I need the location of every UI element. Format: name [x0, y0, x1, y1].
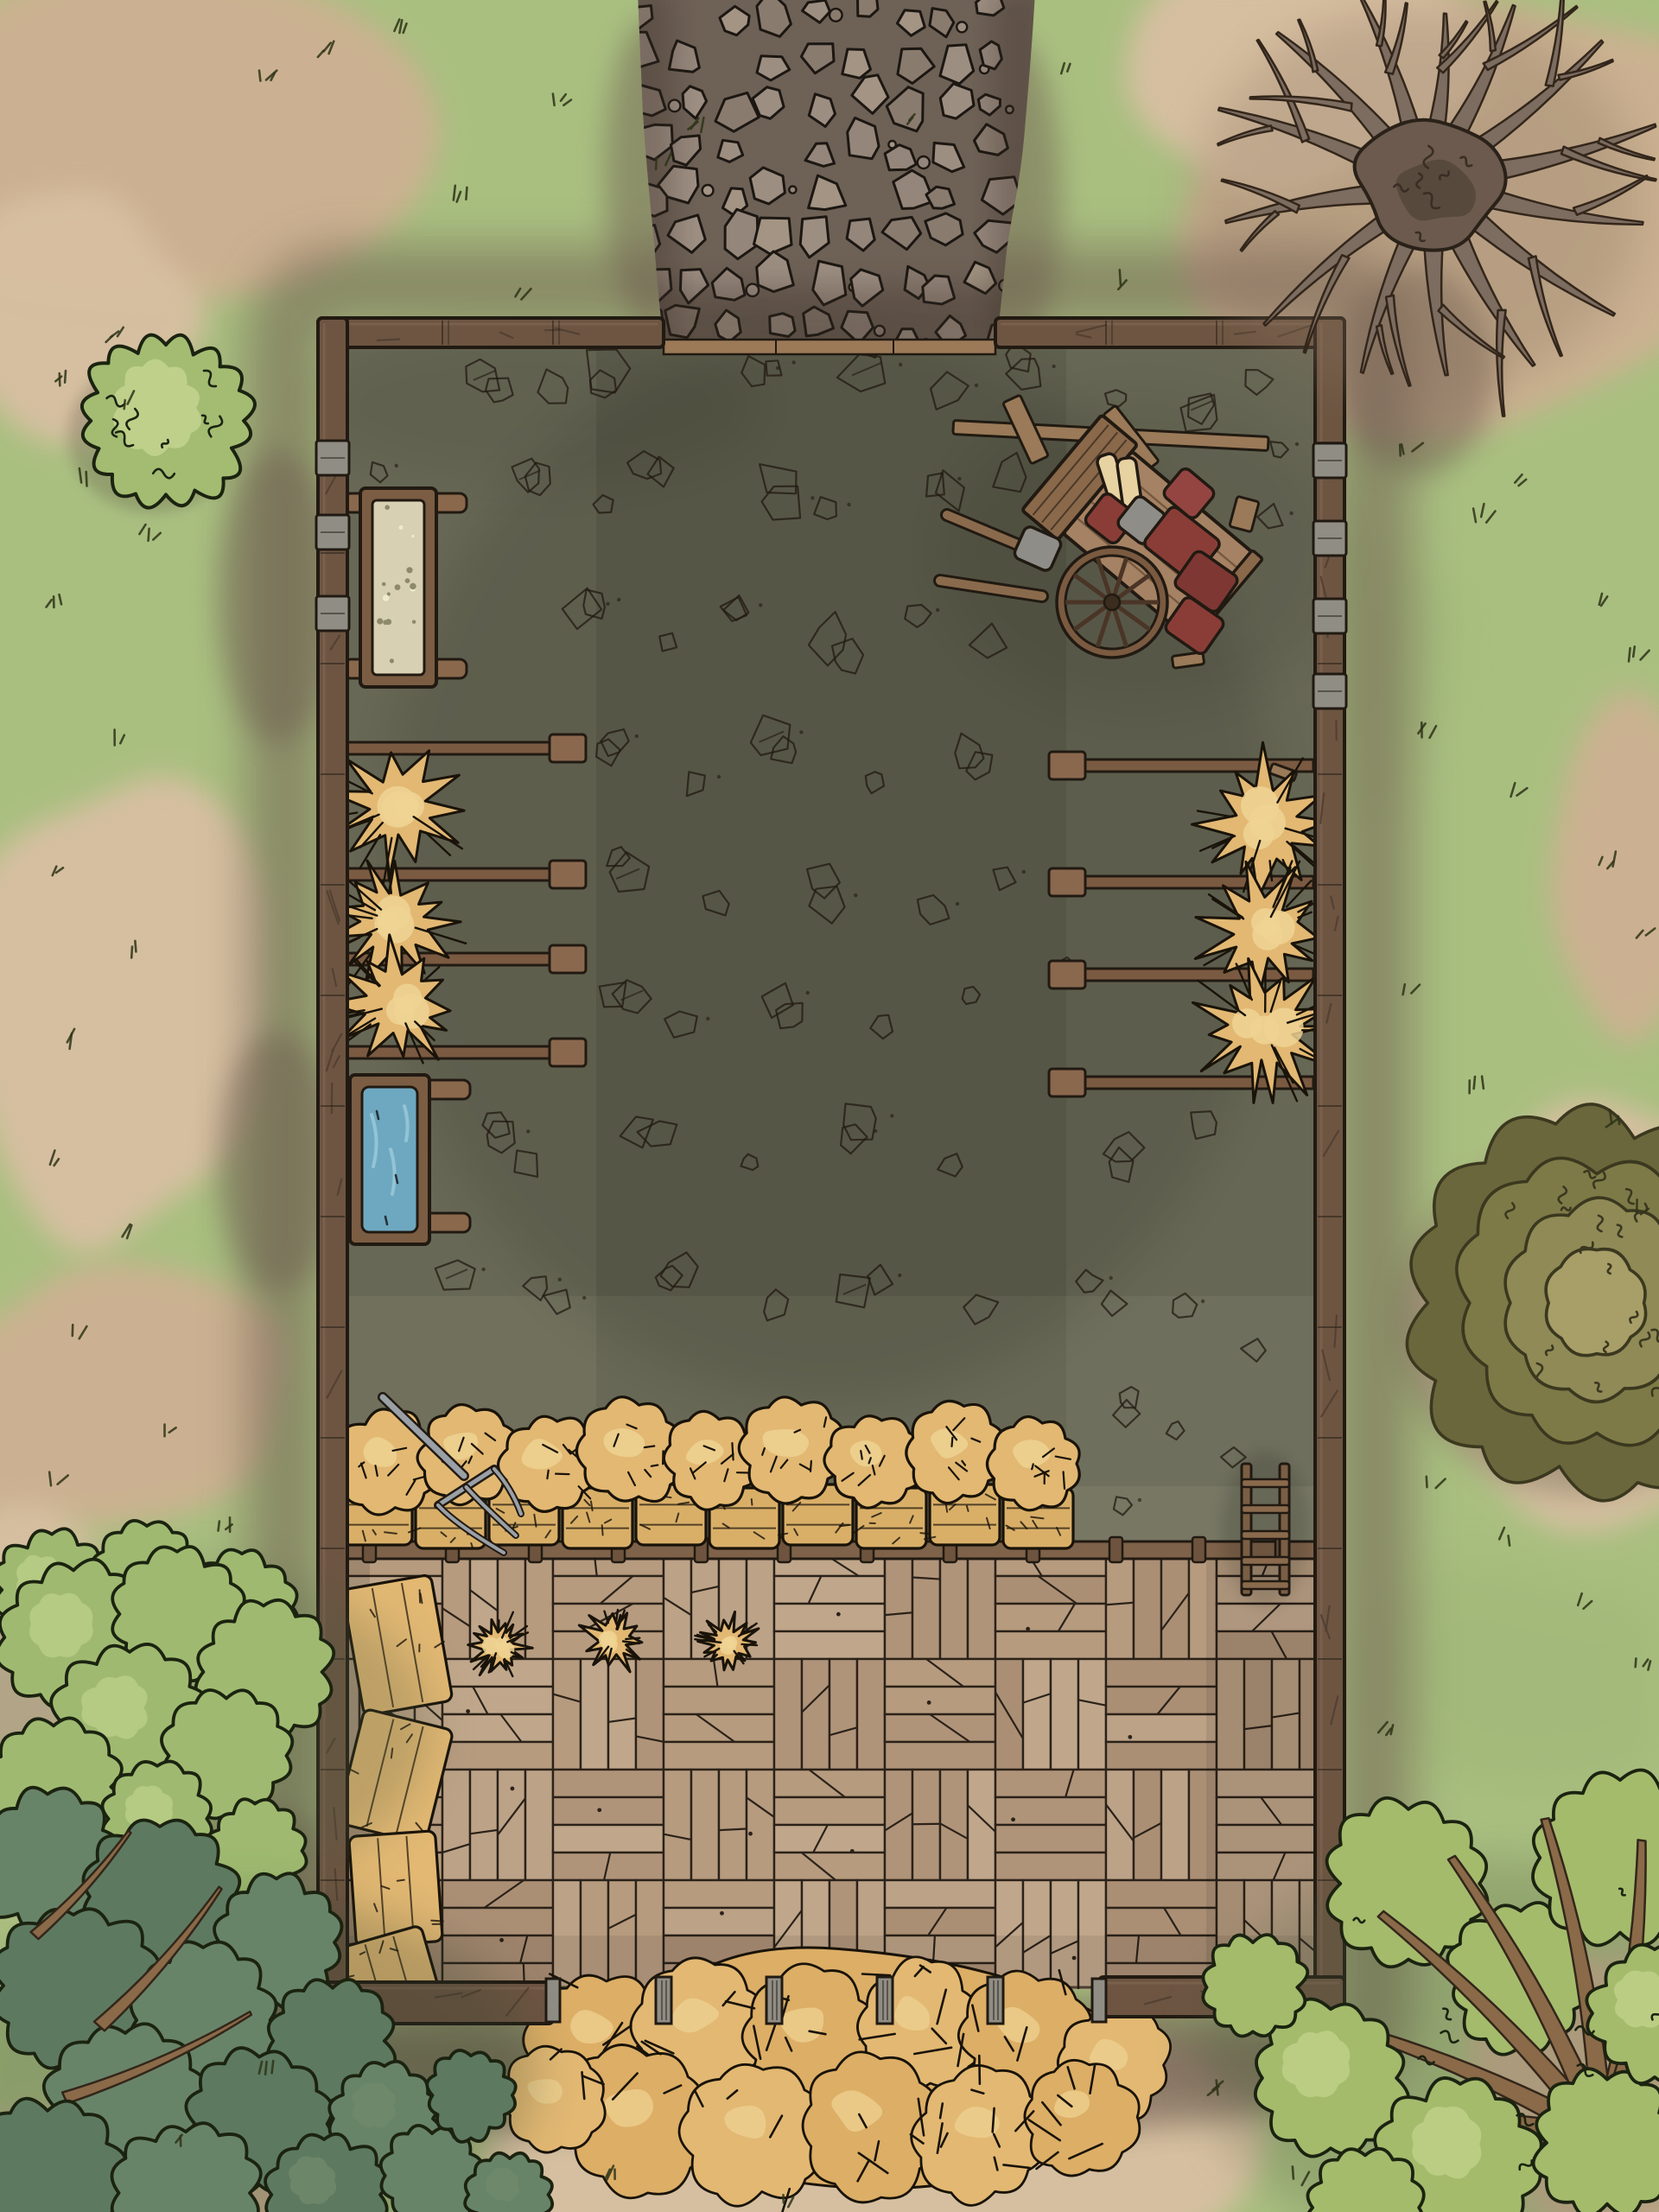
ladder	[1223, 1452, 1309, 1607]
hayloft-plank-floor	[332, 1537, 1327, 1991]
cobblestone-path	[617, 0, 1054, 354]
battle-map-stable	[0, 0, 1659, 2212]
map-canvas	[0, 0, 1659, 2212]
